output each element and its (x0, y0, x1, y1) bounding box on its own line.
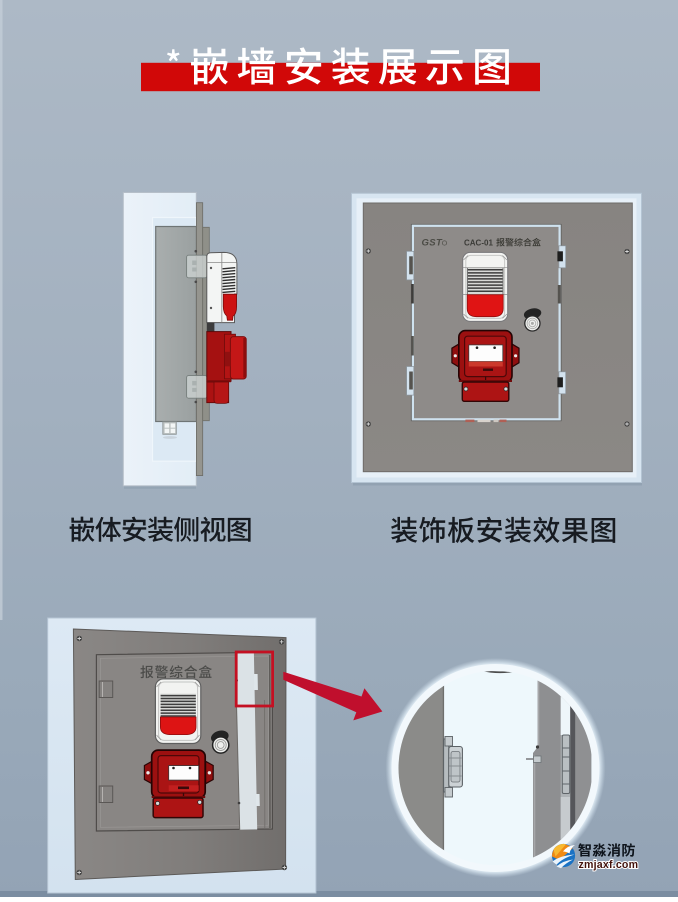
svg-text:GST: GST (422, 238, 444, 249)
svg-text:CAC-01: CAC-01 (464, 238, 493, 247)
svg-text:zmjaxf.com: zmjaxf.com (579, 859, 639, 871)
